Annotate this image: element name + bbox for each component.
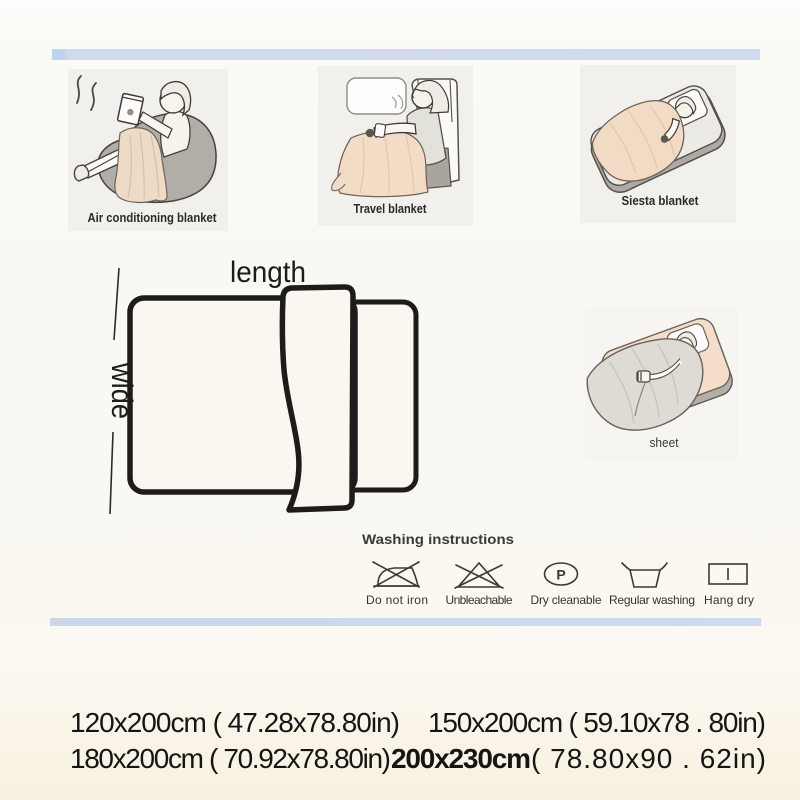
svg-text:180x200cm ( 70.92x78.80in): 180x200cm ( 70.92x78.80in) xyxy=(70,743,391,774)
svg-text:Hang dry: Hang dry xyxy=(704,593,754,607)
svg-text:Regular washing: Regular washing xyxy=(609,593,695,607)
svg-text:wide: wide xyxy=(105,362,138,419)
svg-text:P: P xyxy=(556,567,565,583)
svg-text:( 78.80x90 . 62in): ( 78.80x90 . 62in) xyxy=(531,743,766,774)
svg-text:120x200cm ( 47.28x78.80in): 120x200cm ( 47.28x78.80in) xyxy=(70,707,400,738)
svg-text:Air conditioning blanket: Air conditioning blanket xyxy=(88,210,218,225)
svg-text:sheet: sheet xyxy=(650,435,679,450)
svg-text:Siesta blanket: Siesta blanket xyxy=(622,193,700,208)
svg-text:Dry cleanable: Dry cleanable xyxy=(531,593,602,607)
svg-text:Travel blanket: Travel blanket xyxy=(354,201,428,216)
svg-text:200x230cm: 200x230cm xyxy=(391,743,531,774)
svg-text:Washing instructions: Washing instructions xyxy=(362,532,514,547)
svg-text:Unbleachable: Unbleachable xyxy=(446,593,513,607)
svg-text:Do not iron: Do not iron xyxy=(366,593,428,607)
svg-text:length: length xyxy=(230,256,306,289)
svg-text:150x200cm ( 59.10x78 . 80in): 150x200cm ( 59.10x78 . 80in) xyxy=(428,707,766,738)
